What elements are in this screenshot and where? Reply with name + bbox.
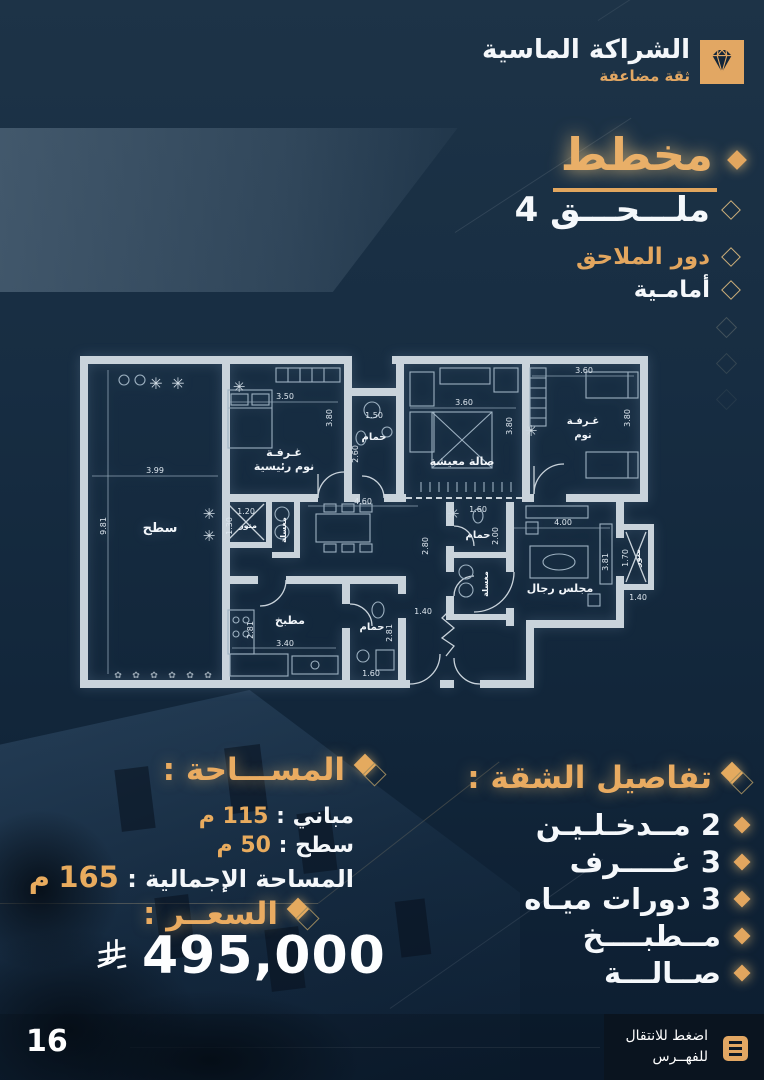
company-logo [700, 40, 744, 84]
svg-text:✿: ✿ [204, 671, 212, 681]
room-label: غـرفـة [266, 446, 302, 459]
room-label: حمام [360, 622, 385, 633]
price-value: 495,000 [142, 926, 386, 986]
diamond-outline-icon [721, 247, 741, 267]
room-label: حمام [362, 432, 387, 443]
svg-text:3.60: 3.60 [575, 366, 593, 375]
room-label: صالة معيشة [430, 455, 495, 468]
double-diamond-icon [288, 899, 318, 929]
detail-item-hall: صــالـــة [604, 956, 748, 990]
diamond-bullet-icon [734, 854, 751, 871]
svg-text:1.40: 1.40 [629, 593, 647, 602]
page-number: 16 [26, 1024, 68, 1059]
svg-text:3.80: 3.80 [505, 417, 514, 435]
svg-text:1.60: 1.60 [362, 669, 380, 678]
company-slogan: ثقة مضاعفة [482, 66, 690, 86]
svg-text:1.40: 1.40 [414, 607, 432, 616]
price-row: 495,000 [96, 926, 386, 986]
area-title-row: المســـاحة : [163, 752, 385, 788]
svg-text:3.81: 3.81 [601, 553, 610, 571]
svg-text:✳: ✳ [171, 374, 184, 393]
area-line-buildings: مباني : 115 م [29, 802, 354, 831]
building-window [395, 898, 432, 957]
svg-text:✿: ✿ [186, 671, 194, 681]
svg-text:3.60: 3.60 [455, 398, 473, 407]
svg-text:✳: ✳ [447, 505, 460, 523]
annex-label: ملـــحـــق 4 [515, 190, 710, 230]
diamond-bullet-icon [727, 150, 747, 170]
apartment-details-list: 2 مــدخـلـيـن 3 غـــــرف 3 دورات ميـاه م… [524, 808, 748, 990]
svg-text:4.60: 4.60 [354, 497, 372, 506]
double-diamond-icon [722, 763, 752, 793]
company-name: الشراكة الماسية [482, 34, 690, 66]
svg-text:✳: ✳ [203, 505, 216, 523]
detail-item-entrances: 2 مــدخـلـيـن [536, 808, 748, 842]
svg-text:✳: ✳ [149, 374, 162, 393]
diamond-outline-icon [721, 280, 741, 300]
orientation-label: أمامـية [634, 277, 710, 303]
svg-text:1.70: 1.70 [621, 549, 630, 567]
room-label: مغسلة [481, 571, 490, 597]
room-label: مغسلة [279, 517, 288, 543]
fading-diamond-icon [716, 389, 737, 410]
area-line-roof: سطح : 50 م [29, 831, 354, 860]
header-text-block: الشراكة الماسية ثقة مضاعفة [482, 34, 690, 86]
detail-item-rooms: 3 غـــــرف [570, 845, 748, 879]
plan-title: مخطط [553, 128, 717, 192]
svg-text:3.80: 3.80 [325, 409, 334, 427]
room-label: مطبخ [275, 614, 305, 627]
svg-text:✳: ✳ [203, 527, 216, 545]
svg-text:1.60: 1.60 [469, 505, 487, 514]
plan-subtitle-row: ملـــحـــق 4 [515, 190, 738, 230]
svg-text:✿: ✿ [114, 671, 122, 681]
svg-text:✿: ✿ [132, 671, 140, 681]
diamond-bullet-icon [734, 891, 751, 908]
diamond-bullet-icon [734, 965, 751, 982]
svg-text:4.00: 4.00 [554, 518, 572, 527]
room-label: سطح [143, 521, 178, 536]
detail-item-bathrooms: 3 دورات ميـاه [524, 882, 748, 916]
detail-item-kitchen: مــطبــــخ [583, 919, 748, 953]
room-label: نوم [574, 430, 591, 441]
room-label: غـرفـة [567, 416, 600, 427]
svg-text:✳: ✳ [233, 378, 246, 396]
diamond-outline-icon [721, 200, 741, 220]
svg-text:3.80: 3.80 [623, 409, 632, 427]
room-label: منور [238, 521, 257, 530]
svg-text:3.50: 3.50 [276, 392, 294, 401]
room-label: منور [633, 549, 642, 568]
svg-text:1.30: 1.30 [225, 517, 234, 535]
details-title: تفاصيل الشقة : [467, 760, 712, 796]
diamond-bullet-icon [734, 817, 751, 834]
details-title-row: تفاصيل الشقة : [467, 760, 752, 796]
svg-text:9.81: 9.81 [99, 517, 108, 535]
svg-text:✳: ✳ [525, 422, 538, 440]
double-diamond-icon [355, 755, 385, 785]
svg-text:2.60: 2.60 [351, 445, 360, 463]
svg-text:✿: ✿ [168, 671, 176, 681]
floor-plan-drawing: ✳ ✳ ✳ ✳ ✳ ✳ ✳ ✿ ✿ ✿ ✿ ✿ ✿ سطح غـرفـة نوم… [80, 356, 664, 696]
area-line-total: المساحة الإجمالية : 165 م [29, 860, 354, 896]
floor-label: دور الملاحق [576, 244, 710, 270]
svg-text:2.80: 2.80 [421, 537, 430, 555]
svg-text:2.00: 2.00 [491, 527, 500, 545]
diamond-gem-icon [706, 47, 738, 77]
brochure-page: الشراكة الماسية ثقة مضاعفة مخطط ملـــحــ… [0, 0, 764, 1080]
orientation-label-row: أمامـية [634, 277, 738, 303]
index-list-icon[interactable] [723, 1036, 748, 1061]
svg-text:1.50: 1.50 [365, 411, 383, 420]
go-to-index-link[interactable]: اضغط للانتقال للفهــرس [625, 1026, 708, 1068]
svg-text:2.81: 2.81 [246, 621, 255, 639]
svg-text:3.99: 3.99 [146, 466, 164, 475]
diamond-bullet-icon [734, 928, 751, 945]
fading-diamond-icon [716, 353, 737, 374]
room-label: حمام [466, 530, 491, 541]
svg-text:✿: ✿ [150, 671, 158, 681]
area-lines: مباني : 115 م سطح : 50 م المساحة الإجمال… [29, 802, 354, 896]
fading-diamond-icon [716, 317, 737, 338]
light-band-decoration [0, 128, 520, 292]
svg-text:1.20: 1.20 [237, 507, 255, 516]
area-title: المســـاحة : [163, 752, 345, 788]
svg-text:3.40: 3.40 [276, 639, 294, 648]
diagonal-line-decoration [598, 0, 750, 21]
floor-label-row: دور الملاحق [576, 244, 738, 270]
room-label: مجلس رجال [527, 582, 594, 595]
plan-title-row: مخطط [553, 128, 744, 192]
svg-text:2.81: 2.81 [385, 624, 394, 642]
room-label: نوم رئيسية [254, 460, 314, 473]
saudi-riyal-icon [96, 936, 128, 976]
